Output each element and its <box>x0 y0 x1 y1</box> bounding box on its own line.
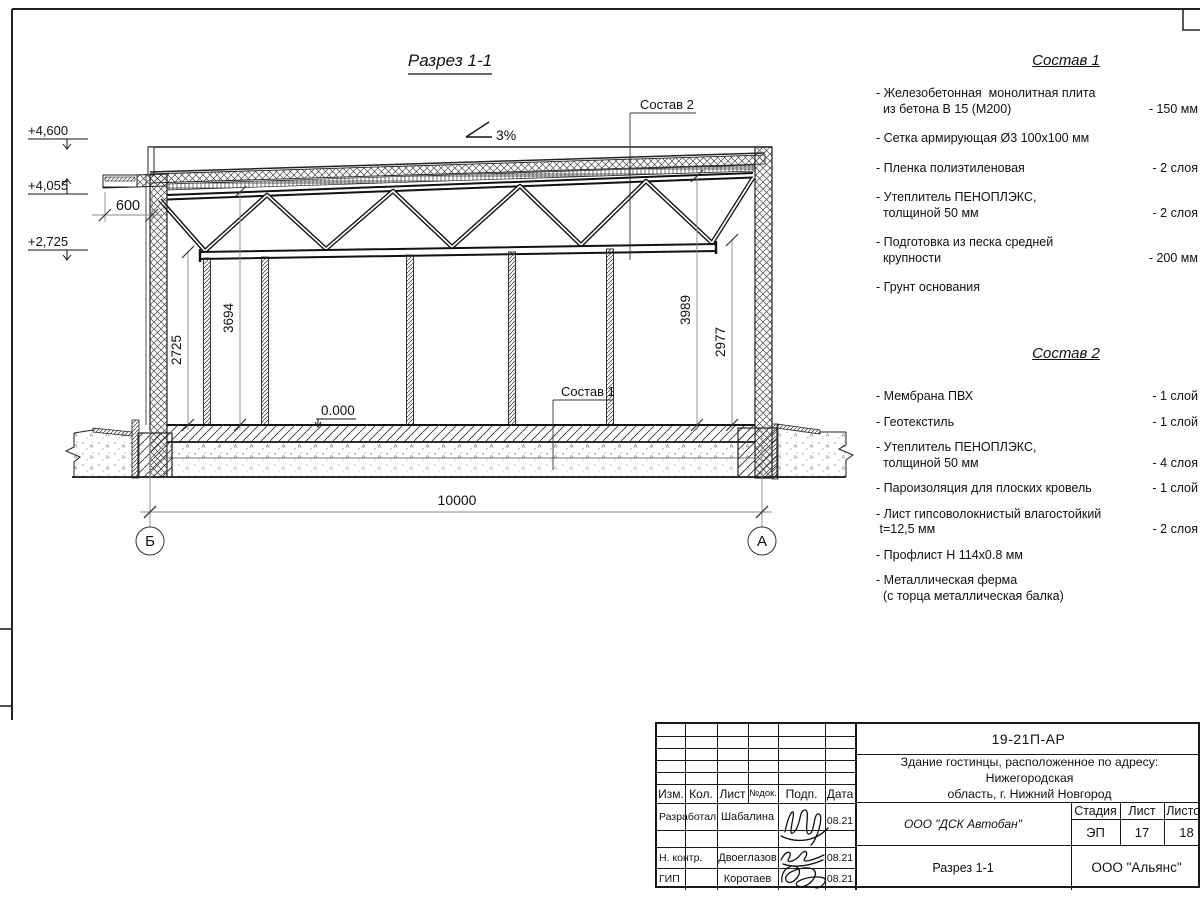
row-role: Н. контр. <box>659 847 717 868</box>
signature-gip <box>776 858 830 892</box>
material-item: - Грунт основания <box>876 280 1198 296</box>
material-item: - Мембрана ПВХ - 1 слой <box>876 389 1198 405</box>
stage-label: Стадия <box>1071 802 1120 819</box>
grid-axis-left: Б <box>136 527 164 555</box>
sostav2-title: Состав 2 <box>1028 345 1104 362</box>
material-item: - Утеплитель ПЕНОПЛЭКС, толщиной 50 мм -… <box>876 190 1198 221</box>
dim-h-right: 3989 <box>678 295 693 325</box>
sostav1-list: - Железобетонная монолитная плита из бет… <box>876 86 1198 310</box>
dim-h-left: 2725 <box>169 335 184 365</box>
material-item: - Пароизоляция для плоских кровель - 1 с… <box>876 481 1198 497</box>
drawing-heading: Разрез 1-1 <box>408 51 492 74</box>
svg-text:Состав 2: Состав 2 <box>640 97 694 112</box>
section-title: Разрез 1-1 <box>408 51 492 70</box>
material-item: - Подготовка из песка средней крупности … <box>876 235 1198 266</box>
drawing-title-cell: Разрез 1-1 <box>855 845 1071 890</box>
material-item: - Сетка армирующая Ø3 100х100 мм <box>876 131 1198 147</box>
drawing-sheet: Разрез 1-1 3% +4,600 +4,055 +2,725 <box>0 0 1200 900</box>
sostav1-title: Состав 1 <box>1028 52 1104 69</box>
row-name: Двоеглазов <box>717 847 778 868</box>
material-item: - Железобетонная монолитная плита из бет… <box>876 86 1198 117</box>
col-list: Лист <box>717 784 748 803</box>
dim-h-mid: 3694 <box>221 302 236 333</box>
doc-number: 19-21П-АР <box>855 724 1200 754</box>
callout-sostav2: Состав 2 <box>630 97 696 260</box>
row-name: Коротаев <box>717 868 778 890</box>
elevation-truss: +2,725 <box>28 234 68 249</box>
material-item: - Геотекстиль - 1 слой <box>876 415 1198 431</box>
material-item: - Пленка полиэтиленовая - 2 слоя <box>876 161 1198 177</box>
elevation-marks: +4,600 +4,055 +2,725 <box>28 123 88 260</box>
sheets-label: Листов <box>1164 802 1200 819</box>
col-izm: Изм. <box>657 784 685 803</box>
material-item: - Профлист Н 114х0.8 мм <box>876 548 1198 564</box>
sheet-number: 17 <box>1120 819 1164 845</box>
row-role: Разработал <box>659 803 717 830</box>
dim-overhang: 600 <box>116 198 140 214</box>
title-block: Изм. Кол. Лист №док. Подп. Дата Разработ… <box>655 722 1200 888</box>
columns <box>204 249 614 425</box>
material-item: - Металлическая ферма (с торца металличе… <box>876 573 1198 604</box>
svg-text:Состав 1: Состав 1 <box>561 384 615 399</box>
axis-label-right: А <box>757 533 767 550</box>
stage-value: ЭП <box>1071 819 1120 845</box>
col-kol: Кол. <box>685 784 717 803</box>
company-name: ООО "ДСК Автобан" <box>855 802 1071 845</box>
material-item: - Утеплитель ПЕНОПЛЭКС, толщиной 50 мм -… <box>876 440 1198 471</box>
elevation-parapet: +4,600 <box>28 123 68 138</box>
dim-h-beam: 2977 <box>713 327 728 357</box>
project-name: Здание гостинцы, расположенное по адресу… <box>857 754 1200 802</box>
level-zero: 0.000 <box>321 403 355 418</box>
row-name: Шабалина <box>717 803 778 830</box>
sheet-label: Лист <box>1120 802 1164 819</box>
floor-slab <box>72 425 846 477</box>
row-role: ГИП <box>659 868 717 890</box>
col-ndoc: №док. <box>748 784 778 803</box>
material-item: - Лист гипсоволокнистый влагостойкий t=1… <box>876 507 1198 538</box>
grid-axis-right: А <box>748 527 776 555</box>
org-name: ООО "Альянс" <box>1071 845 1200 890</box>
dim-span: 10000 <box>438 492 477 508</box>
slope-label: 3% <box>496 127 516 143</box>
elevation-canopy: +4,055 <box>28 178 68 193</box>
sheets-total: 18 <box>1164 819 1200 845</box>
axis-label-left: Б <box>145 533 155 550</box>
slope-mark: 3% <box>466 122 516 143</box>
left-wall <box>150 174 167 477</box>
bottom-chord-beam <box>200 244 716 259</box>
zero-level-mark: 0.000 <box>315 403 356 427</box>
sostav2-list: - Мембрана ПВХ - 1 слой - Геотекстиль - … <box>876 389 1198 614</box>
